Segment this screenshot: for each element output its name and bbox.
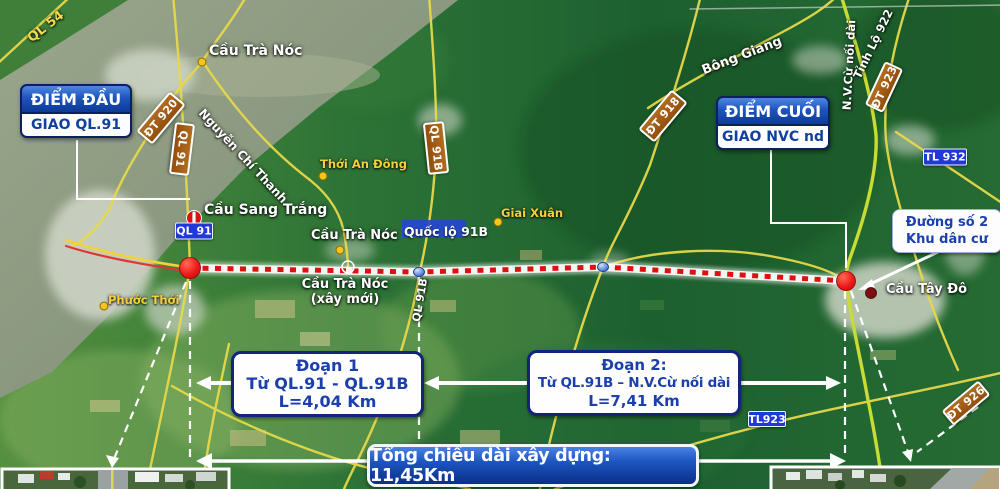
place-cau-tay-do: Cầu Tây Đô xyxy=(886,282,967,297)
place-cau-tra-noc-new: Cầu Trà Nóc (xây mới) xyxy=(284,277,406,307)
section1-box: Đoạn 1 Từ QL.91 - QL.91B L=4,04 Km xyxy=(231,351,424,417)
section2-box: Đoạn 2: Từ QL.91B – N.V.Cừ nối dài L=7,4… xyxy=(527,350,741,416)
section2-name: Đoạn 2: xyxy=(530,356,738,374)
residential-road-note: Đường số 2 Khu dân cư xyxy=(892,209,1000,253)
end-callout-title: ĐIỂM CUỐI xyxy=(716,96,830,124)
start-point-callout: ĐIỂM ĐẦU GIAO QL.91 xyxy=(20,84,132,138)
shield-tl923: TL923 xyxy=(748,411,786,427)
end-callout-subtitle: GIAO NVC nd xyxy=(716,124,830,150)
total-length-banner: Tổng chiều dài xây dựng: 11,45Km xyxy=(367,444,699,487)
end-point-marker xyxy=(837,272,856,291)
section2-route: Từ QL.91B – N.V.Cừ nối dài xyxy=(530,374,738,392)
road-name-quoc-lo-91b: Quốc lộ 91B xyxy=(404,221,488,240)
section2-length: L=7,41 Km xyxy=(530,392,738,410)
section1-name: Đoạn 1 xyxy=(234,357,421,375)
project-map-slide: Image © 2021 Maxar Technologies QL 54 Ng… xyxy=(0,0,1000,489)
place-thoi-an-dong: Thới An Đông xyxy=(320,157,407,171)
start-callout-title: ĐIỂM ĐẦU xyxy=(20,84,132,112)
place-phuoc-thoi: Phước Thới xyxy=(108,293,179,307)
place-giai-xuan: Giai Xuân xyxy=(501,206,563,220)
inset-photo-end xyxy=(771,467,1000,489)
start-callout-subtitle: GIAO QL.91 xyxy=(20,112,132,138)
end-point-callout: ĐIỂM CUỐI GIAO NVC nd xyxy=(716,96,830,150)
place-cau-tra-noc: Cầu Trà Nóc xyxy=(311,228,398,243)
route-node-2 xyxy=(598,262,609,271)
place-cau-tra-noc-north: Cầu Trà Nóc xyxy=(209,43,302,59)
inset-photo-start xyxy=(2,469,229,489)
section1-length: L=4,04 Km xyxy=(234,393,421,411)
route-node-1 xyxy=(414,267,425,276)
start-point-marker xyxy=(180,258,201,279)
shield-ql91-blue: QL 91 xyxy=(175,223,213,240)
place-cau-sang-trang: Cầu Sang Trắng xyxy=(204,202,327,218)
section1-route: Từ QL.91 - QL.91B xyxy=(234,375,421,393)
cau-tay-do-dot xyxy=(866,288,877,299)
shield-tl932: TL 932 xyxy=(923,149,967,166)
